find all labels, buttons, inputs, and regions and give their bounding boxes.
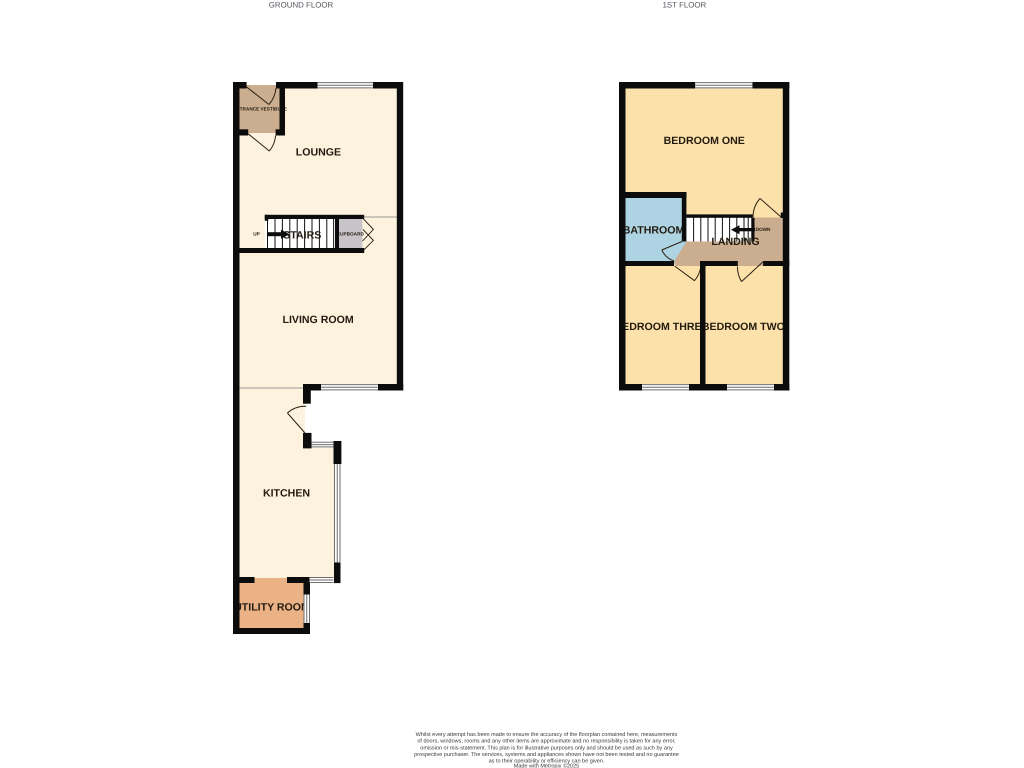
svg-text:UP: UP — [253, 231, 260, 236]
svg-text:BEDROOM TWO: BEDROOM TWO — [702, 321, 785, 333]
svg-text:Made with Metropix ©2025: Made with Metropix ©2025 — [514, 763, 580, 768]
svg-text:prospective purchaser. The ser: prospective purchaser. The services, sys… — [414, 752, 679, 758]
svg-text:LIVING ROOM: LIVING ROOM — [282, 314, 353, 326]
svg-text:1ST FLOOR: 1ST FLOOR — [663, 0, 707, 9]
svg-text:omission or mis-statement. Thi: omission or mis-statement. This plan is … — [420, 745, 673, 751]
svg-text:LANDING: LANDING — [711, 236, 759, 248]
svg-text:BATHROOM: BATHROOM — [623, 225, 685, 237]
svg-text:Whilst every attempt has been: Whilst every attempt has been made to en… — [416, 732, 678, 738]
svg-text:DOWN: DOWN — [756, 227, 771, 232]
svg-text:of doors, windows, rooms and a: of doors, windows, rooms and any other i… — [417, 739, 676, 745]
svg-text:GROUND FLOOR: GROUND FLOOR — [269, 0, 334, 9]
svg-text:UTILITY ROOM: UTILITY ROOM — [234, 601, 310, 613]
svg-text:CUPBOARD: CUPBOARD — [337, 231, 365, 236]
svg-text:BEDROOM THREE: BEDROOM THREE — [615, 321, 709, 333]
svg-text:ENTRANCE VESTIBULE: ENTRANCE VESTIBULE — [233, 107, 287, 112]
svg-text:KITCHEN: KITCHEN — [263, 487, 310, 499]
svg-text:STAIRS: STAIRS — [283, 229, 321, 241]
svg-text:LOUNGE: LOUNGE — [296, 147, 341, 159]
svg-text:BEDROOM ONE: BEDROOM ONE — [664, 135, 745, 147]
